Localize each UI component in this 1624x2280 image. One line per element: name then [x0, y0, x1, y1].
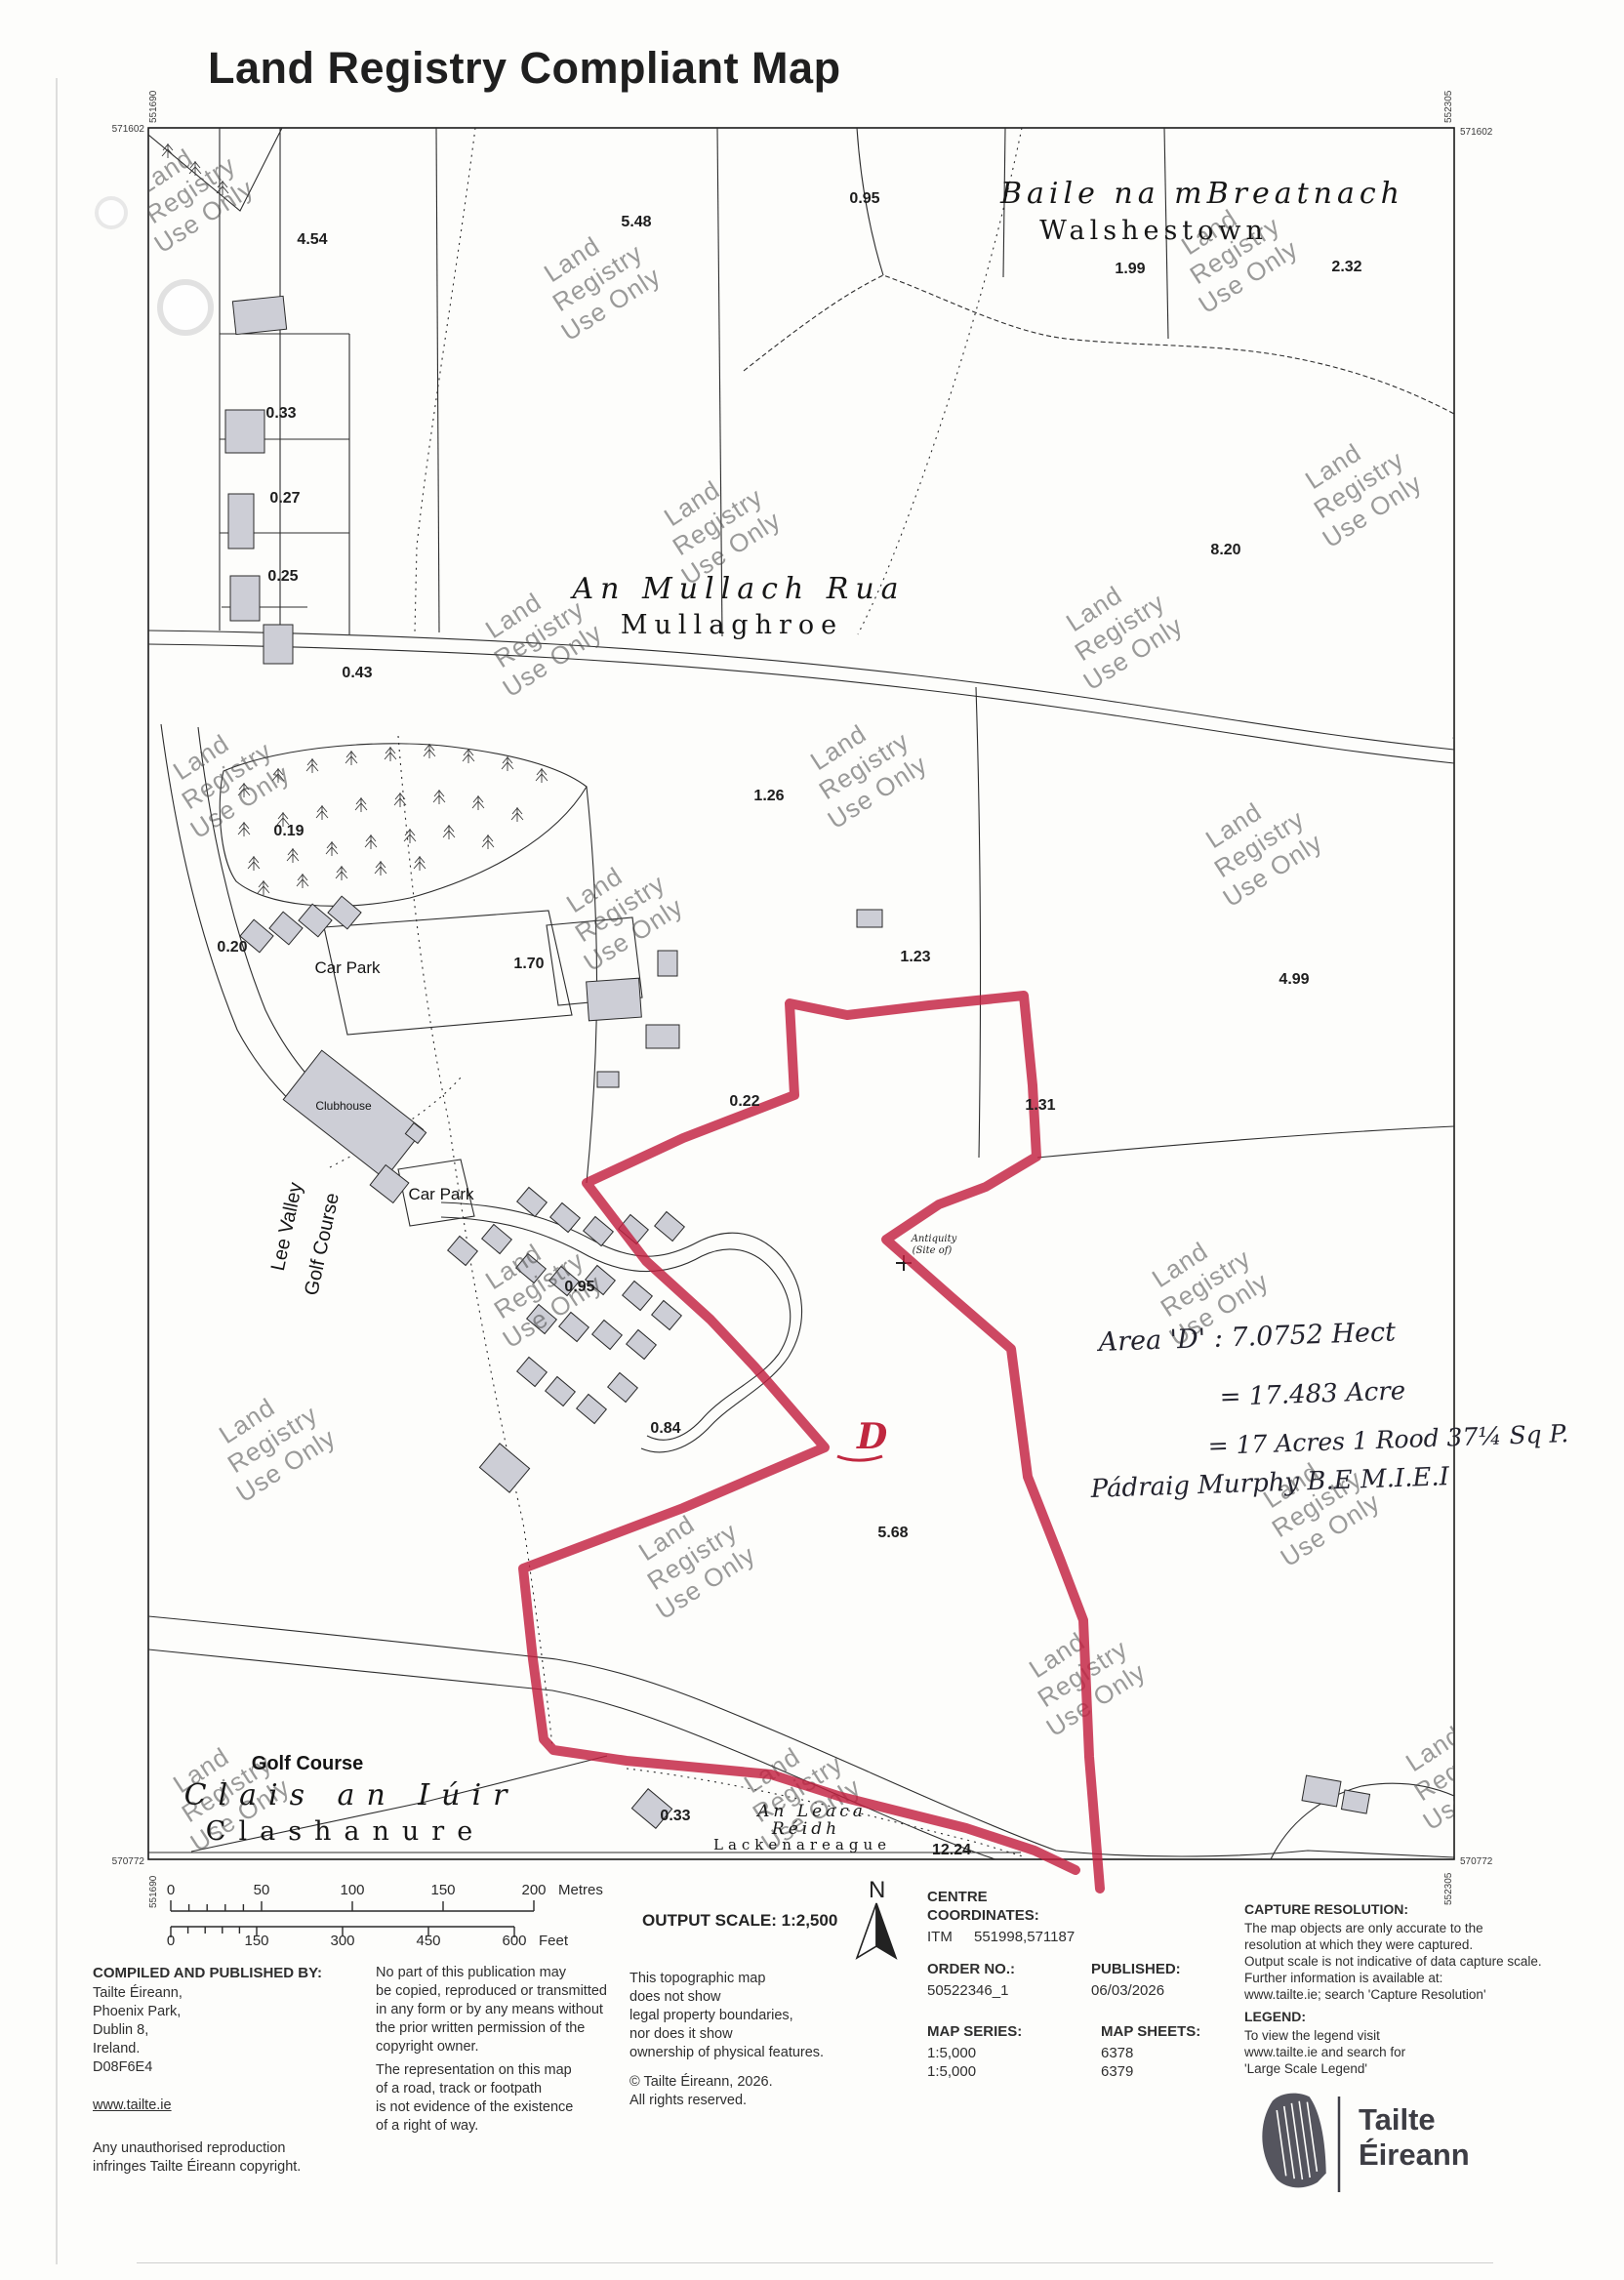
- text-line: 6379: [1101, 2062, 1200, 2081]
- parcel-area-label: 12.24: [932, 1842, 971, 1858]
- place-label: Clais an Iúir: [184, 1778, 519, 1812]
- map-sheets-label: MAP SHEETS:: [1101, 2022, 1200, 2041]
- svg-text:Use Only: Use Only: [1465, 731, 1575, 817]
- parcel-area-label: 0.27: [269, 490, 300, 507]
- map-frame: [148, 128, 1454, 1859]
- text-line: Ireland.: [93, 2040, 322, 2058]
- text-line: be copied, reproduced or transmitted: [376, 1982, 607, 2001]
- svg-text:Land: Land: [1447, 701, 1514, 758]
- order-no-label: ORDER NO.:: [927, 1960, 1015, 1978]
- order-no-block: ORDER NO.: 50522346_1: [927, 1960, 1015, 2000]
- legend-block: LEGEND: To view the legend visitwww.tail…: [1244, 2009, 1405, 2077]
- scale-tick-label: 450: [416, 1933, 440, 1949]
- building: [646, 1025, 679, 1048]
- corner-coord-label: 570772: [1460, 1856, 1493, 1867]
- copyright-paragraph: No part of this publication maybe copied…: [376, 1964, 607, 2056]
- order-no-value: 50522346_1: [927, 1981, 1015, 2000]
- published-value: 06/03/2026: [1091, 1981, 1181, 2000]
- scale-tick-label: 200: [521, 1882, 546, 1898]
- text-line: © Tailte Éireann, 2026.: [629, 2073, 773, 2092]
- topographic-lines: This topographic mapdoes not showlegal p…: [629, 1970, 824, 2062]
- text-line: Any unauthorised reproduction: [93, 2139, 301, 2158]
- map-series-values: 1:5,0001:5,000: [927, 2044, 1022, 2081]
- corner-coord-label: 571602: [1460, 127, 1493, 138]
- hole-punch-artifact: [97, 198, 126, 227]
- corner-coord-label: 551690: [148, 1875, 159, 1908]
- text-line: does not show: [629, 1988, 824, 2007]
- parcel-area-label: 1.23: [900, 949, 930, 965]
- centre-coordinates-block: CENTRE COORDINATES: ITM 551998,571187: [927, 1888, 1075, 1946]
- text-line: No part of this publication may: [376, 1964, 607, 1982]
- hole-punch-artifact: [160, 282, 211, 333]
- map-series-label: MAP SERIES:: [927, 2022, 1022, 2041]
- logo-word-2: Éireann: [1359, 2137, 1470, 2172]
- north-label: N: [869, 1877, 885, 1903]
- place-label: An Mullach Rua: [569, 572, 905, 606]
- capture-resolution-header: CAPTURE RESOLUTION:: [1244, 1901, 1542, 1918]
- place-label: Clashanure: [206, 1816, 485, 1847]
- place-label: Clubhouse: [315, 1099, 372, 1113]
- scale-tick-label: 0: [167, 1882, 175, 1898]
- tailte-eireann-logo: Tailte Éireann: [1256, 2090, 1470, 2192]
- building: [228, 494, 254, 549]
- text-line: infringes Tailte Éireann copyright.: [93, 2158, 301, 2177]
- text-line: Tailte Éireann,: [93, 1984, 322, 2003]
- text-line: legal property boundaries,: [629, 2007, 824, 2025]
- parcel-area-label: 5.48: [621, 214, 651, 230]
- map-series-block: MAP SERIES: 1:5,0001:5,000: [927, 2022, 1022, 2081]
- building: [225, 410, 264, 453]
- scale-tick-label: 150: [430, 1882, 455, 1898]
- place-label: Mullaghroe: [621, 610, 843, 640]
- parcel-area-label: 1.31: [1025, 1097, 1055, 1114]
- building: [857, 910, 882, 927]
- rights-lines: © Tailte Éireann, 2026.All rights reserv…: [629, 2073, 773, 2110]
- text-line: is not evidence of the existence: [376, 2098, 573, 2117]
- parcel-area-label: 1.26: [753, 788, 784, 804]
- itm-label: ITM: [927, 1929, 953, 1945]
- parcel-area-label: 4.54: [297, 231, 327, 248]
- logo-word-1: Tailte: [1359, 2102, 1436, 2137]
- text-line: Dublin 8,: [93, 2021, 322, 2040]
- scale-metres-unit: Metres: [558, 1882, 603, 1898]
- text-line: 'Large Scale Legend': [1244, 2060, 1405, 2077]
- text-line: The map objects are only accurate to the: [1244, 1920, 1542, 1936]
- output-scale-label: OUTPUT SCALE:: [642, 1911, 777, 1930]
- unauthorised-lines: Any unauthorised reproductioninfringes T…: [93, 2139, 301, 2177]
- text-line: 1:5,000: [927, 2062, 1022, 2081]
- text-line: of a right of way.: [376, 2117, 573, 2136]
- svg-text:Registry: Registry: [1456, 709, 1557, 788]
- published-label: PUBLISHED:: [1091, 1960, 1181, 1978]
- legend-lines: To view the legend visitwww.tailte.ie an…: [1244, 2027, 1405, 2077]
- text-line: ownership of physical features.: [629, 2044, 824, 2062]
- building: [1302, 1775, 1341, 1807]
- building: [232, 296, 286, 334]
- text-line: resolution at which they were captured.: [1244, 1936, 1542, 1953]
- tailte-website-link[interactable]: www.tailte.ie: [93, 2097, 172, 2113]
- parcel-area-label: 0.19: [273, 823, 304, 839]
- text-line: in any form or by any means without: [376, 2001, 607, 2019]
- parcel-area-label: 0.33: [265, 405, 296, 422]
- text-line: The representation on this map: [376, 2061, 573, 2080]
- itm-coordinates: ITM 551998,571187: [927, 1928, 1075, 1946]
- compiled-by-header: COMPILED AND PUBLISHED BY:: [93, 1964, 322, 1982]
- harp-icon: [1256, 2090, 1329, 2192]
- corner-coord-label: 552305: [1443, 1872, 1454, 1905]
- copyright-lines: No part of this publication maybe copied…: [376, 1964, 607, 2056]
- parcel-area-label: 0.22: [729, 1093, 759, 1110]
- corner-coord-label: 570772: [112, 1856, 145, 1867]
- place-label: Golf Course: [252, 1753, 363, 1774]
- corner-coord-label: 571602: [112, 124, 145, 135]
- corner-coord-label: 552305: [1443, 90, 1454, 123]
- text-line: 6378: [1101, 2044, 1200, 2062]
- building: [1341, 1790, 1369, 1813]
- text-line: 1:5,000: [927, 2044, 1022, 2062]
- scanned-map-page: Land Registry Compliant Map: [0, 0, 1624, 2280]
- output-scale-value: 1:2,500: [782, 1911, 838, 1930]
- published-block: PUBLISHED: 06/03/2026: [1091, 1960, 1181, 2000]
- scale-tick-label: 50: [254, 1882, 270, 1898]
- place-label: Baile na mBreatnach: [999, 177, 1404, 211]
- itm-value: 551998,571187: [974, 1929, 1075, 1945]
- text-line: nor does it show: [629, 2025, 824, 2044]
- scale-tick-label: 100: [340, 1882, 364, 1898]
- output-scale: OUTPUT SCALE: 1:2,500: [642, 1911, 837, 1931]
- parcel-area-label: 1.99: [1115, 261, 1145, 277]
- building: [597, 1072, 619, 1087]
- text-line: the prior written permission of the: [376, 2019, 607, 2038]
- north-arrow-icon: N: [857, 1877, 896, 1958]
- text-line: D08F6E4: [93, 2058, 322, 2077]
- parcel-area-label: 0.20: [217, 939, 247, 956]
- text-line: This topographic map: [629, 1970, 824, 1988]
- scale-bar-labels: 0501001502000150300450600: [167, 1882, 547, 1949]
- compiled-by-block: COMPILED AND PUBLISHED BY: Tailte Éirean…: [93, 1964, 322, 2077]
- scale-feet-unit: Feet: [539, 1933, 569, 1949]
- parcel-area-label: 4.99: [1279, 971, 1309, 988]
- building: [264, 625, 293, 664]
- text-line: Output scale is not indicative of data c…: [1244, 1953, 1542, 1970]
- building: [658, 951, 677, 976]
- text-line: To view the legend visit: [1244, 2027, 1405, 2044]
- centre-header-1: CENTRE: [927, 1888, 1075, 1906]
- parcel-area-label: 0.43: [342, 665, 372, 681]
- place-label: An Leaca: [755, 1802, 867, 1821]
- building: [587, 978, 642, 1021]
- text-line: of a road, track or footpath: [376, 2080, 573, 2098]
- rights-reserved-note: © Tailte Éireann, 2026.All rights reserv…: [629, 2073, 773, 2110]
- map-sheets-block: MAP SHEETS: 63786379: [1101, 2022, 1200, 2081]
- parcel-area-label: 0.33: [660, 1808, 690, 1824]
- text-line: Phoenix Park,: [93, 2003, 322, 2021]
- right-of-way-lines: The representation on this mapof a road,…: [376, 2061, 573, 2136]
- parcel-area-label: 0.95: [849, 190, 879, 207]
- scale-tick-label: 600: [502, 1933, 526, 1949]
- scale-tick-label: 0: [167, 1933, 175, 1949]
- text-line: www.tailte.ie; search 'Capture Resolutio…: [1244, 1986, 1542, 2003]
- text-line: www.tailte.ie and search for: [1244, 2044, 1405, 2060]
- parcel-area-label: 0.25: [267, 568, 298, 585]
- place-label: Walshestown: [1039, 216, 1268, 246]
- unauthorised-note: Any unauthorised reproductioninfringes T…: [93, 2139, 301, 2177]
- topographic-note: This topographic mapdoes not showlegal p…: [629, 1970, 824, 2062]
- text-line: All rights reserved.: [629, 2092, 773, 2110]
- centre-header-2: COORDINATES:: [927, 1906, 1075, 1925]
- place-label: Car Park: [408, 1185, 474, 1203]
- scale-tick-label: 300: [330, 1933, 354, 1949]
- place-label: Car Park: [314, 958, 381, 977]
- capture-resolution-lines: The map objects are only accurate to the…: [1244, 1920, 1542, 2003]
- website-link-wrap: www.tailte.ie: [93, 2097, 172, 2115]
- right-of-way-paragraph: The representation on this mapof a road,…: [376, 2061, 573, 2136]
- place-label: (Site of): [913, 1245, 953, 1256]
- place-label: Antiquity: [911, 1234, 957, 1244]
- text-line: Further information is available at:: [1244, 1970, 1542, 1986]
- compiled-by-lines: Tailte Éireann,Phoenix Park,Dublin 8,Ire…: [93, 1984, 322, 2077]
- scale-tick-label: 150: [244, 1933, 268, 1949]
- map-sheets-values: 63786379: [1101, 2044, 1200, 2081]
- corner-coord-label: 551690: [148, 90, 159, 123]
- parcel-area-label: 1.70: [513, 956, 544, 972]
- parcel-area-label: 5.68: [877, 1525, 908, 1541]
- place-label: Lackenareague: [713, 1836, 891, 1853]
- capture-resolution-block: CAPTURE RESOLUTION: The map objects are …: [1244, 1901, 1542, 2003]
- text-line: copyright owner.: [376, 2038, 607, 2056]
- parcel-area-label: 0.84: [650, 1420, 680, 1437]
- legend-header: LEGEND:: [1244, 2009, 1405, 2025]
- building: [230, 576, 260, 621]
- parcel-area-label: 2.32: [1331, 259, 1361, 275]
- parcel-area-label: 0.95: [564, 1279, 594, 1295]
- parcel-area-label: 8.20: [1210, 542, 1240, 558]
- red-ink-area-d-mark: D: [856, 1416, 887, 1457]
